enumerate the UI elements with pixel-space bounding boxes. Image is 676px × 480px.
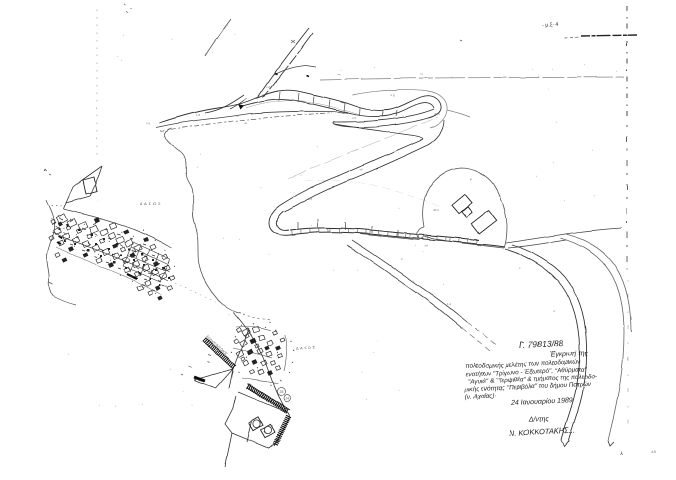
svg-text:- μ.ξ· 4: - μ.ξ· 4 [542, 22, 559, 29]
svg-text:ΔΑΣΟΣ: ΔΑΣΟΣ [140, 201, 162, 206]
svg-text:25: 25 [279, 390, 283, 394]
svg-text:1.4: 1.4 [447, 302, 452, 306]
svg-text:(ν. Αχαΐας)·: (ν. Αχαΐας)· [465, 392, 497, 401]
svg-text:μ: μ [470, 177, 472, 181]
svg-text:x.θ.: x.θ. [266, 85, 271, 89]
svg-text:1.8: 1.8 [196, 113, 201, 117]
svg-text:24: 24 [286, 397, 290, 401]
svg-text:ΔΑΣΟΣ: ΔΑΣΟΣ [296, 346, 317, 350]
svg-text:xθ: xθ [424, 243, 428, 247]
svg-text:1.8: 1.8 [390, 93, 395, 97]
svg-text:3.6: 3.6 [308, 197, 313, 201]
svg-text:x.θ: x.θ [352, 116, 356, 120]
svg-text:xθ: xθ [360, 167, 364, 171]
svg-text:Δ/ντης: Δ/ντης [528, 416, 550, 424]
svg-text:40.2: 40.2 [433, 208, 439, 212]
svg-text:4,5: 4,5 [651, 450, 656, 454]
svg-text:xθ: xθ [244, 121, 248, 125]
svg-text:x.θ.: x.θ. [146, 121, 151, 125]
svg-text:Γ. 79813/88: Γ. 79813/88 [519, 338, 564, 350]
svg-text:40.6: 40.6 [434, 112, 440, 116]
